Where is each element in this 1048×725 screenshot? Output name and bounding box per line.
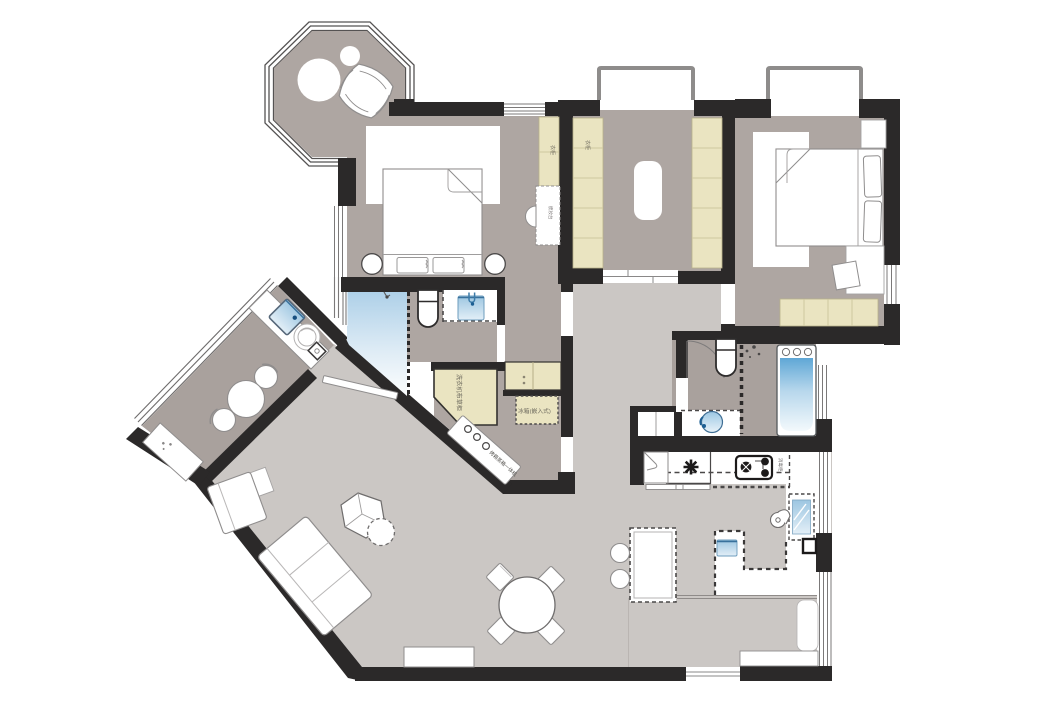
svg-text:消毒柜: 消毒柜: [777, 458, 784, 472]
svg-text:衣柜: 衣柜: [584, 140, 591, 150]
svg-text:梳妆台: 梳妆台: [547, 206, 554, 220]
svg-text:洗衣机布草柜: 洗衣机布草柜: [455, 374, 463, 411]
svg-text:冰箱(嵌入式): 冰箱(嵌入式): [518, 407, 551, 415]
svg-text:衣柜: 衣柜: [549, 145, 556, 155]
